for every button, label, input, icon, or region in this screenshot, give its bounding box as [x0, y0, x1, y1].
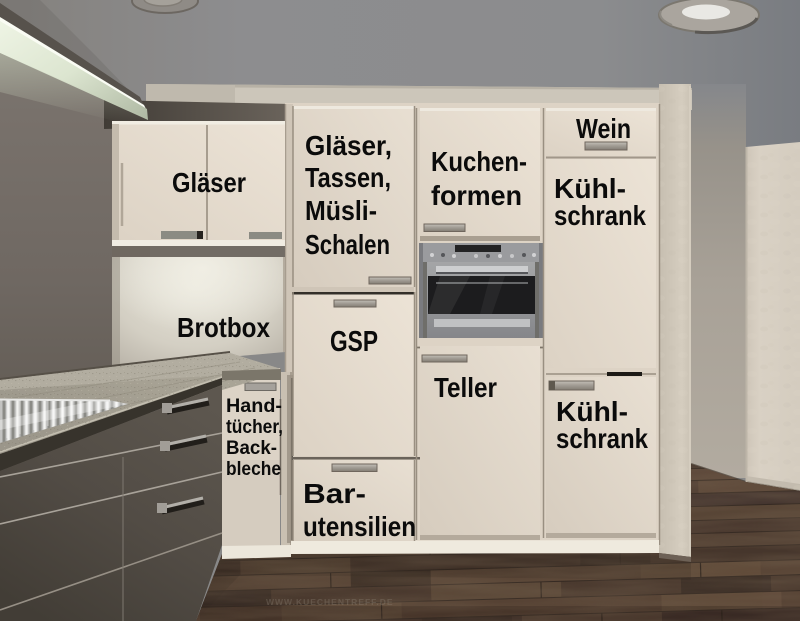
svg-text:Bar-: Bar- — [303, 478, 366, 509]
svg-text:Back-: Back- — [226, 438, 277, 459]
svg-text:formen: formen — [431, 180, 522, 211]
svg-text:Hand-: Hand- — [226, 396, 282, 417]
svg-text:Gläser: Gläser — [172, 167, 246, 198]
svg-text:Müsli-: Müsli- — [305, 195, 377, 226]
svg-text:tücher,: tücher, — [226, 417, 283, 438]
svg-text:bleche: bleche — [226, 459, 281, 480]
svg-text:Gläser,: Gläser, — [305, 130, 392, 161]
svg-text:Teller: Teller — [434, 372, 497, 403]
svg-text:Tassen,: Tassen, — [305, 162, 391, 193]
svg-text:Brotbox: Brotbox — [177, 312, 270, 343]
svg-text:schrank: schrank — [554, 200, 646, 231]
svg-text:GSP: GSP — [330, 326, 378, 358]
svg-text:Wein: Wein — [576, 113, 631, 144]
svg-text:Kuchen-: Kuchen- — [431, 146, 527, 177]
svg-text:schrank: schrank — [556, 423, 648, 454]
svg-text:utensilien: utensilien — [303, 511, 416, 542]
svg-text:WWW.KUECHENTREFF.DE: WWW.KUECHENTREFF.DE — [266, 597, 394, 607]
svg-text:Schalen: Schalen — [305, 229, 390, 260]
